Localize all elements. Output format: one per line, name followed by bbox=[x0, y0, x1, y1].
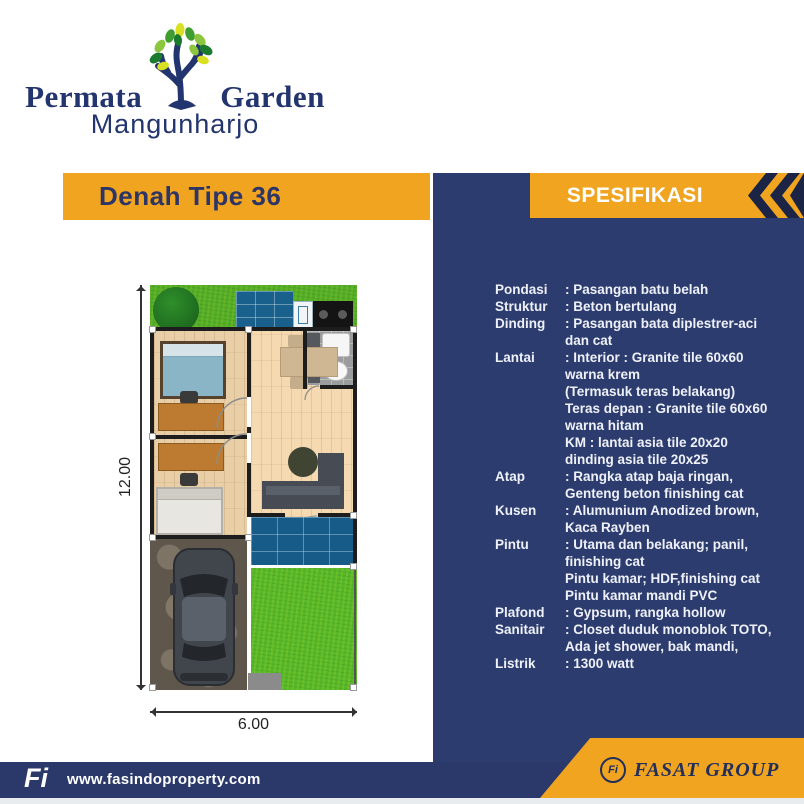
spec-row: Atap : Rangka atap baja ringan,Genteng b… bbox=[495, 468, 795, 502]
spec-value-line: finishing cat bbox=[565, 553, 795, 570]
spec-value-line: (Termasuk teras belakang) bbox=[565, 383, 795, 400]
spec-value-line: : Beton bertulang bbox=[565, 298, 795, 315]
spec-row: Listrik : 1300 watt bbox=[495, 655, 795, 672]
spec-label: Kusen bbox=[495, 502, 565, 536]
spec-row: Kusen : Alumunium Anodized brown,Kaca Ra… bbox=[495, 502, 795, 536]
fasindo-icon: Fi bbox=[24, 763, 48, 794]
spec-label: Listrik bbox=[495, 655, 565, 672]
spec-value-line: Genteng beton finishing cat bbox=[565, 485, 795, 502]
spec-value-line: warna hitam bbox=[565, 417, 795, 434]
spec-label: Plafond bbox=[495, 604, 565, 621]
specification-list: Pondasi : Pasangan batu belah Struktur :… bbox=[495, 281, 795, 672]
wall-marker bbox=[149, 433, 156, 440]
arrow-down-icon bbox=[136, 685, 146, 695]
spec-value-line: KM : lantai asia tile 20x20 bbox=[565, 434, 795, 451]
wall-marker bbox=[245, 534, 252, 541]
specification-title: SPESIFIKASI bbox=[530, 173, 740, 218]
brand-logo: Permata bbox=[10, 22, 340, 140]
floor-plan bbox=[150, 285, 357, 690]
spec-value: : Interior : Granite tile 60x60warna kre… bbox=[565, 349, 795, 468]
flyer-page: Permata bbox=[0, 0, 804, 804]
tree-icon bbox=[148, 22, 214, 115]
front-terrace-tiles bbox=[251, 517, 353, 565]
spec-label: Struktur bbox=[495, 298, 565, 315]
group-name: FASAT GROUP bbox=[634, 759, 779, 782]
specification-title-banner: SPESIFIKASI bbox=[530, 173, 804, 218]
spec-value-line: : 1300 watt bbox=[565, 655, 795, 672]
spec-value: : Closet duduk monoblok TOTO,Ada jet sho… bbox=[565, 621, 795, 655]
dimension-line-vertical bbox=[140, 285, 142, 690]
spec-value-line: : Closet duduk monoblok TOTO, bbox=[565, 621, 795, 638]
footer-divider bbox=[0, 798, 804, 804]
entry-step bbox=[248, 673, 281, 690]
wall-marker bbox=[350, 684, 357, 691]
wall-marker bbox=[350, 326, 357, 333]
spec-row: Sanitair : Closet duduk monoblok TOTO,Ad… bbox=[495, 621, 795, 655]
spec-value: : Rangka atap baja ringan,Genteng beton … bbox=[565, 468, 795, 502]
dimension-line-horizontal bbox=[150, 711, 357, 713]
spec-value-line: Pintu kamar mandi PVC bbox=[565, 587, 795, 604]
spec-value-line: : Rangka atap baja ringan, bbox=[565, 468, 795, 485]
spec-row: Lantai : Interior : Granite tile 60x60wa… bbox=[495, 349, 795, 468]
spec-row: Struktur : Beton bertulang bbox=[495, 298, 795, 315]
spec-value-line: : Pasangan batu belah bbox=[565, 281, 795, 298]
spec-value: : Pasangan bata diplestrer-acidan cat bbox=[565, 315, 795, 349]
spec-value-line: : Pasangan bata diplestrer-aci bbox=[565, 315, 795, 332]
wall-marker bbox=[149, 684, 156, 691]
wall-marker bbox=[245, 326, 252, 333]
car bbox=[170, 547, 238, 687]
footer-website: www.fasindoproperty.com bbox=[67, 771, 261, 788]
spec-value-line: warna krem bbox=[565, 366, 795, 383]
group-logo: Fi FASAT GROUP bbox=[600, 757, 779, 783]
floorplan-title-banner: Denah Tipe 36 bbox=[63, 173, 430, 220]
spec-value-line: dinding asia tile 20x25 bbox=[565, 451, 795, 468]
double-chevron-left-icon bbox=[734, 173, 804, 223]
spec-value-line: Ada jet shower, bak mandi, bbox=[565, 638, 795, 655]
spec-value: : 1300 watt bbox=[565, 655, 795, 672]
spec-value-line: : Utama dan belakang; panil, bbox=[565, 536, 795, 553]
spec-value-line: Kaca Rayben bbox=[565, 519, 795, 536]
spec-label: Sanitair bbox=[495, 621, 565, 655]
wall-marker bbox=[149, 326, 156, 333]
plot-height-label: 12.00 bbox=[117, 447, 135, 507]
spec-value: : Gypsum, rangka hollow bbox=[565, 604, 795, 621]
spec-value-line: : Gypsum, rangka hollow bbox=[565, 604, 795, 621]
fasat-group-icon: Fi bbox=[600, 757, 626, 783]
wall-marker bbox=[149, 534, 156, 541]
spec-value: : Alumunium Anodized brown,Kaca Rayben bbox=[565, 502, 795, 536]
wall-marker bbox=[350, 512, 357, 519]
wall-marker bbox=[350, 563, 357, 570]
spec-row: Dinding : Pasangan bata diplestrer-acida… bbox=[495, 315, 795, 349]
spec-label: Atap bbox=[495, 468, 565, 502]
spec-value-line: dan cat bbox=[565, 332, 795, 349]
spec-value-line: : Alumunium Anodized brown, bbox=[565, 502, 795, 519]
front-yard-grass bbox=[251, 568, 357, 690]
spec-value: : Utama dan belakang; panil,finishing ca… bbox=[565, 536, 795, 604]
spec-value-line: Teras depan : Granite tile 60x60 bbox=[565, 400, 795, 417]
spec-value-line: Pintu kamar; HDF,finishing cat bbox=[565, 570, 795, 587]
floorplan-title: Denah Tipe 36 bbox=[99, 181, 281, 212]
spec-row: Plafond : Gypsum, rangka hollow bbox=[495, 604, 795, 621]
spec-label: Pondasi bbox=[495, 281, 565, 298]
plot-width-label: 6.00 bbox=[150, 716, 357, 734]
spec-value-line: : Interior : Granite tile 60x60 bbox=[565, 349, 795, 366]
plot-right-edge bbox=[354, 569, 356, 690]
spec-label: Pintu bbox=[495, 536, 565, 604]
spec-label: Lantai bbox=[495, 349, 565, 468]
spec-label: Dinding bbox=[495, 315, 565, 349]
spec-value: : Pasangan batu belah bbox=[565, 281, 795, 298]
spec-row: Pintu : Utama dan belakang; panil,finish… bbox=[495, 536, 795, 604]
arrow-up-icon bbox=[136, 281, 146, 291]
spec-row: Pondasi : Pasangan batu belah bbox=[495, 281, 795, 298]
spec-value: : Beton bertulang bbox=[565, 298, 795, 315]
